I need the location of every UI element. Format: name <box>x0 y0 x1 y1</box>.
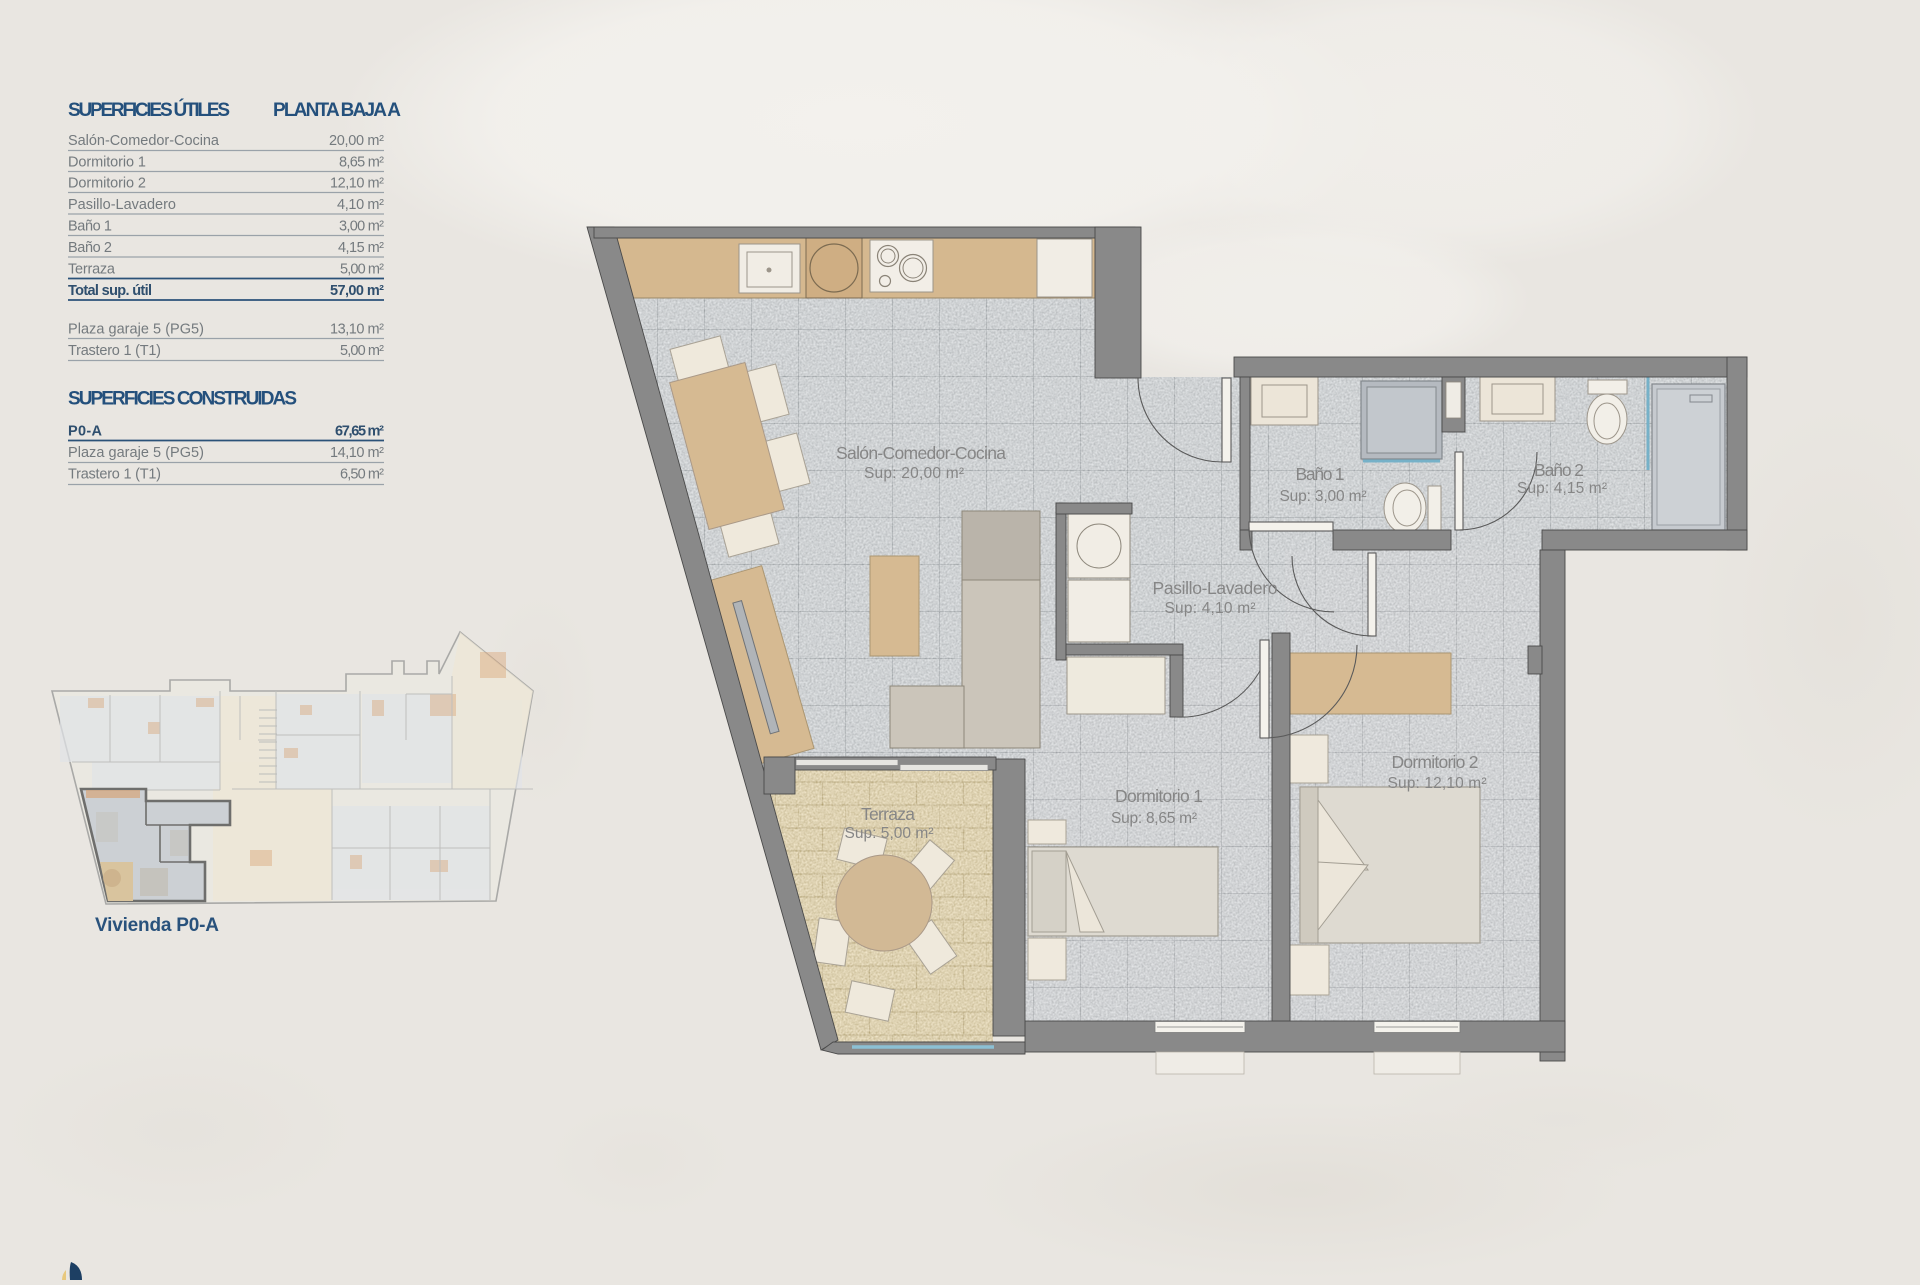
svg-text:Terraza: Terraza <box>861 804 915 824</box>
svg-text:Plaza garaje 5 (PG5): Plaza garaje 5 (PG5) <box>68 322 204 338</box>
svg-text:Dormitorio 1: Dormitorio 1 <box>1115 786 1203 806</box>
svg-text:20,00 m²: 20,00 m² <box>329 133 384 149</box>
svg-text:Pasillo-Lavadero: Pasillo-Lavadero <box>1153 578 1278 598</box>
svg-text:Sup: 4,15 m²: Sup: 4,15 m² <box>1517 480 1607 497</box>
svg-text:Dormitorio 2: Dormitorio 2 <box>1392 752 1479 772</box>
svg-text:Baño 2: Baño 2 <box>68 240 112 256</box>
svg-text:12,10 m²: 12,10 m² <box>330 176 384 192</box>
svg-text:13,10 m²: 13,10 m² <box>330 322 384 338</box>
svg-text:Plaza garaje 5 (PG5): Plaza garaje 5 (PG5) <box>68 445 204 461</box>
svg-text:3,00 m²: 3,00 m² <box>339 219 384 235</box>
svg-text:67,65 m²: 67,65 m² <box>335 424 384 440</box>
svg-text:Vivienda P0-A: Vivienda P0-A <box>95 915 219 936</box>
svg-text:SUPERFICIES ÚTILES: SUPERFICIES ÚTILES <box>68 99 230 121</box>
svg-text:5,00 m²: 5,00 m² <box>340 262 384 278</box>
svg-text:Salón-Comedor-Cocina: Salón-Comedor-Cocina <box>68 133 220 149</box>
svg-text:Sup: 3,00 m²: Sup: 3,00 m² <box>1280 488 1367 505</box>
svg-text:4,10 m²: 4,10 m² <box>337 197 384 213</box>
svg-text:Baño 2: Baño 2 <box>1534 460 1584 480</box>
svg-text:8,65 m²: 8,65 m² <box>339 155 384 171</box>
svg-text:Salón-Comedor-Cocina: Salón-Comedor-Cocina <box>836 443 1006 463</box>
svg-text:6,50 m²: 6,50 m² <box>340 467 384 483</box>
svg-text:5,00 m²: 5,00 m² <box>340 343 384 359</box>
svg-text:Terraza: Terraza <box>68 262 116 278</box>
svg-text:Total sup. útil: Total sup. útil <box>68 283 152 299</box>
svg-text:Pasillo-Lavadero: Pasillo-Lavadero <box>68 197 176 213</box>
svg-text:P0-A: P0-A <box>68 424 103 440</box>
svg-text:57,00 m²: 57,00 m² <box>330 283 384 299</box>
svg-text:Dormitorio 2: Dormitorio 2 <box>68 176 146 192</box>
svg-text:Trastero 1 (T1): Trastero 1 (T1) <box>68 343 161 359</box>
svg-text:SUPERFICIES CONSTRUIDAS: SUPERFICIES CONSTRUIDAS <box>68 389 297 410</box>
svg-text:Baño 1: Baño 1 <box>68 219 112 235</box>
svg-text:Sup: 8,65 m²: Sup: 8,65 m² <box>1111 810 1197 827</box>
svg-text:Sup: 5,00 m²: Sup: 5,00 m² <box>845 825 934 842</box>
svg-text:Dormitorio 1: Dormitorio 1 <box>68 155 146 171</box>
svg-text:Sup: 12,10 m²: Sup: 12,10 m² <box>1388 775 1487 792</box>
svg-text:Trastero 1 (T1): Trastero 1 (T1) <box>68 467 161 483</box>
svg-text:4,15 m²: 4,15 m² <box>338 240 384 256</box>
svg-text:PLANTA BAJA A: PLANTA BAJA A <box>273 100 401 121</box>
svg-text:14,10 m²: 14,10 m² <box>330 445 384 461</box>
svg-text:Baño 1: Baño 1 <box>1296 464 1345 484</box>
svg-text:Sup: 4,10 m²: Sup: 4,10 m² <box>1165 600 1256 617</box>
svg-text:Sup: 20,00 m²: Sup: 20,00 m² <box>864 465 964 482</box>
